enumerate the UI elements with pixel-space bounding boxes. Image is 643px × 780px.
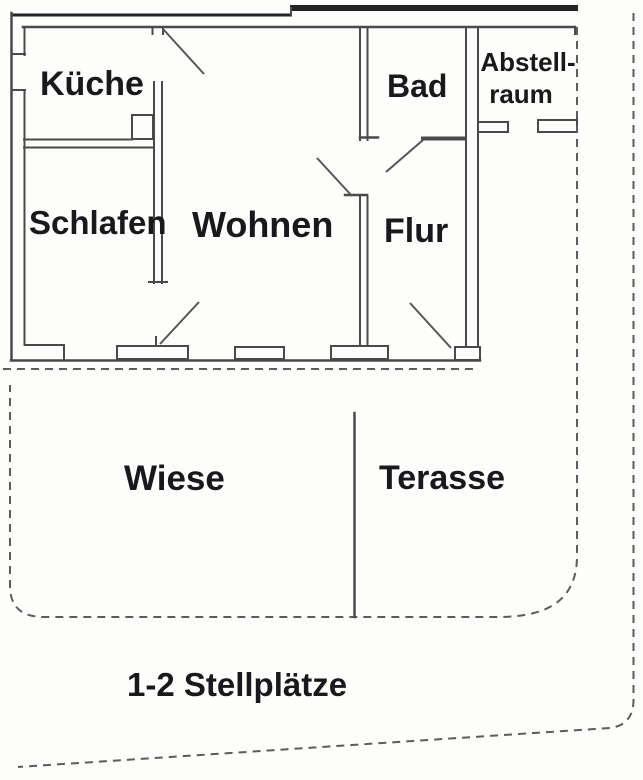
- room-label-abstellraum-line1: Abstell-: [480, 47, 575, 77]
- room-label-schlafen: Schlafen: [29, 204, 167, 241]
- duct-shaft-box: [132, 115, 153, 139]
- room-label-flur: Flur: [384, 212, 448, 250]
- bedroom-door-leaf: [160, 302, 199, 344]
- entrance-door: [153, 27, 205, 74]
- window-bedroom: [117, 346, 188, 359]
- floor-plan: Küche Bad Abstell- raum Schlafen Wohnen …: [0, 0, 643, 780]
- entrance-door-leaf: [163, 29, 204, 74]
- terrace-exit-door-leaf: [410, 303, 451, 348]
- room-label-kueche: Küche: [40, 65, 144, 103]
- room-label-wohnen: Wohnen: [192, 204, 333, 245]
- floor-plan-drawing: Küche Bad Abstell- raum Schlafen Wohnen …: [0, 0, 643, 780]
- area-label-stellplaetze: 1-2 Stellplätze: [127, 666, 347, 703]
- window-living-right: [331, 346, 388, 359]
- outdoor-labels: Wiese Terasse 1-2 Stellplätze: [124, 459, 505, 703]
- bottom-windows: [117, 346, 388, 359]
- storage-room-walls: [478, 120, 577, 132]
- right-wall-corner-foot: [455, 347, 480, 360]
- room-label-bad: Bad: [387, 68, 447, 104]
- bath-door-leaf: [386, 140, 423, 172]
- hallway-walls: [317, 158, 451, 348]
- storage-wall-stub-right: [538, 120, 577, 132]
- room-label-abstellraum-line2: raum: [489, 79, 553, 109]
- boundary-inner-parcel: [10, 27, 577, 617]
- window-living-left: [235, 347, 284, 359]
- living-hall-door-leaf: [317, 158, 352, 196]
- area-label-wiese: Wiese: [124, 459, 225, 498]
- storage-wall-stub-left: [478, 122, 508, 132]
- area-label-terasse: Terasse: [379, 459, 505, 497]
